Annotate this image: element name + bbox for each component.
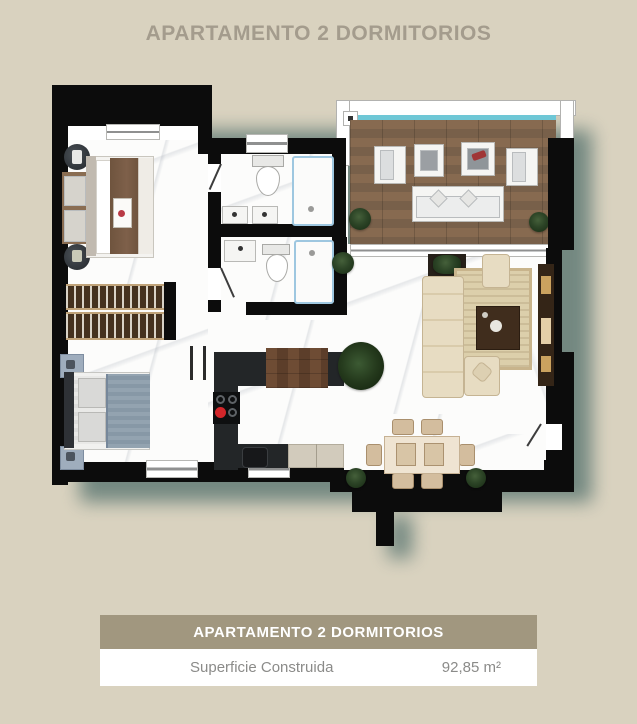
- nightstand-2b-item: [66, 452, 75, 461]
- summary-card: APARTAMENTO 2 DORMITORIOS Superficie Con…: [100, 615, 537, 686]
- placemat-2: [424, 443, 444, 466]
- shower-2-drain: [309, 250, 315, 256]
- surface-value: 92,85 m²: [442, 659, 501, 676]
- bench-cushion-1: [64, 176, 86, 206]
- wall-wardrobe-stub: [164, 282, 176, 340]
- wall-bottom-stub: [376, 512, 394, 546]
- coffee-table-dish: [490, 320, 502, 332]
- bathroom-2-door-gap: [208, 268, 221, 300]
- terrace-railing-top: [336, 100, 576, 116]
- outdoor-sofa-seat: [416, 196, 500, 218]
- sink-2-faucet: [238, 246, 243, 251]
- tv-console-decor-1: [541, 276, 551, 294]
- living-armchair: [482, 254, 510, 288]
- outdoor-table-1-top: [420, 150, 438, 171]
- dining-chair-bottom-1: [392, 473, 414, 489]
- summary-card-header: APARTAMENTO 2 DORMITORIOS: [100, 615, 537, 649]
- kitchen-cabinet-divider: [316, 444, 317, 468]
- window-bathroom-1: [246, 134, 288, 153]
- window-bedroom-2: [146, 460, 198, 478]
- coffee-table-item: [482, 312, 488, 318]
- vanity-1-faucets: [232, 212, 237, 217]
- palm-plant: [338, 342, 384, 390]
- sink-2: [224, 240, 256, 262]
- bedroom-2-door-frame-2: [203, 346, 206, 380]
- burner-4: [228, 408, 237, 417]
- bed-1-tray-flower: [118, 210, 125, 217]
- kitchen-sink: [242, 447, 268, 468]
- burner-2: [228, 395, 237, 404]
- wall-dining-step-b: [352, 490, 502, 512]
- sofa-vertical-section: [422, 276, 464, 398]
- tv-console-decor-2: [541, 318, 551, 344]
- lounge-chair-2-cushion: [512, 152, 526, 182]
- dining-chair-right: [459, 444, 475, 466]
- nightstand-2a-item: [66, 360, 75, 369]
- wall-terrace-right: [548, 138, 574, 250]
- bed-2-duvet: [106, 374, 150, 448]
- dining-bush-right: [466, 468, 486, 488]
- burner-red: [215, 407, 226, 418]
- tv-console-decor-3: [541, 356, 551, 372]
- hall-bush: [332, 252, 354, 274]
- shower-1: [292, 156, 334, 226]
- bed-2-pillow-2: [78, 412, 106, 442]
- bedroom-2-door-frame-1: [190, 346, 193, 380]
- bed-1-headboard: [86, 156, 96, 256]
- nightstand-1a-lamp: [72, 150, 82, 164]
- shower-2: [294, 240, 334, 304]
- floorplan: [0, 0, 637, 560]
- window-bedroom-1: [106, 124, 160, 140]
- vanity-1-faucet-b: [262, 212, 267, 217]
- bed-1-duvet-fold: [138, 158, 153, 254]
- wardrobe-rack-2: [66, 312, 164, 340]
- wardrobe-rack-1: [66, 284, 164, 310]
- terrace-plant-right: [529, 212, 549, 232]
- nightstand-1b-plant: [72, 250, 82, 262]
- surface-label: Superficie Construida: [190, 659, 333, 676]
- bed-2-pillow-1: [78, 378, 106, 408]
- kitchen-breakfast-bar: [266, 348, 328, 388]
- burner-1: [216, 395, 225, 404]
- wall-top: [52, 85, 212, 128]
- shower-1-drain: [308, 206, 314, 212]
- entrance-door-gap: [546, 424, 562, 450]
- dining-chair-bottom-2: [421, 473, 443, 489]
- dining-chair-left: [366, 444, 382, 466]
- lounge-chair-1-cushion: [380, 150, 394, 180]
- bench-cushion-2: [64, 210, 86, 242]
- bed-2-headboard: [64, 372, 74, 448]
- dining-bush-left: [346, 468, 366, 488]
- summary-card-row: Superficie Construida 92,85 m²: [100, 649, 537, 686]
- page: { "title": "APARTAMENTO 2 DORMITORIOS", …: [0, 0, 637, 724]
- terrace-plant-left: [349, 208, 371, 230]
- dining-chair-top-1: [392, 419, 414, 435]
- placemat-1: [396, 443, 416, 466]
- dining-chair-top-2: [421, 419, 443, 435]
